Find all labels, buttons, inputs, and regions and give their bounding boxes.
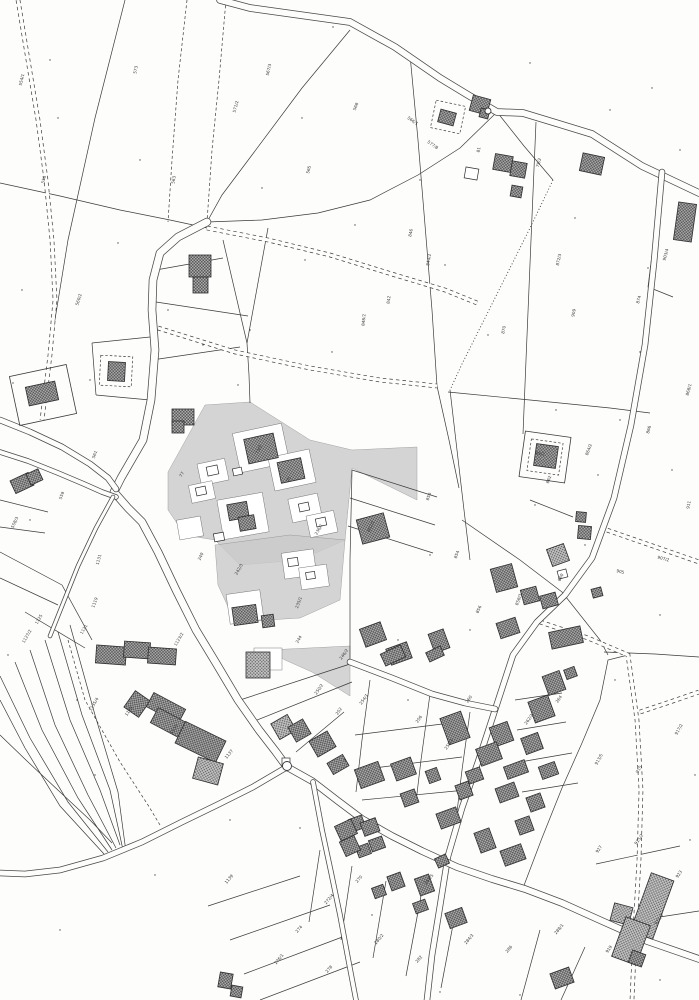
noise-speck <box>555 409 556 410</box>
building <box>261 614 275 628</box>
noise-speck <box>519 994 520 995</box>
building <box>238 515 256 532</box>
building <box>534 444 559 469</box>
building <box>493 154 514 173</box>
noise-speck <box>21 289 22 290</box>
outbuilding-outline <box>232 467 242 476</box>
noise-speck <box>139 159 140 160</box>
noise-speck <box>647 267 648 268</box>
building <box>232 604 258 625</box>
zone-clearing-parcel <box>176 516 203 540</box>
noise-speck <box>609 109 610 110</box>
noise-speck <box>76 699 77 700</box>
cadastral-map-canvas: 573571/2568566/18179/2846848/2909903/456… <box>0 0 699 1000</box>
noise-speck <box>249 329 250 330</box>
noise-speck <box>529 62 530 63</box>
noise-speck <box>7 654 8 655</box>
noise-speck <box>444 264 445 265</box>
noise-speck <box>679 149 680 150</box>
noise-speck <box>304 259 305 260</box>
noise-speck <box>689 839 690 840</box>
noise-speck <box>94 774 95 775</box>
noise-speck <box>439 991 440 992</box>
building <box>95 645 126 665</box>
outbuilding-outline <box>464 167 479 180</box>
noise-speck <box>659 614 660 615</box>
noise-speck <box>29 519 30 520</box>
noise-speck <box>301 117 302 118</box>
noise-speck <box>694 774 695 775</box>
noise-speck <box>584 544 585 545</box>
noise-speck <box>12 382 13 383</box>
noise-speck <box>229 819 230 820</box>
noise-speck <box>651 87 652 88</box>
outbuilding-outline <box>213 532 224 542</box>
noise-speck <box>597 474 598 475</box>
building <box>576 512 587 523</box>
noise-speck <box>167 309 168 310</box>
noise-speck <box>397 639 398 640</box>
noise-speck <box>332 26 333 27</box>
building <box>246 652 270 678</box>
noise-speck <box>574 217 575 218</box>
noise-speck <box>639 351 640 352</box>
noise-speck <box>261 187 262 188</box>
noise-speck <box>419 179 420 180</box>
noise-speck <box>49 59 50 60</box>
noise-speck <box>154 874 155 875</box>
map-page: 573571/2568566/18179/2846848/2909903/456… <box>0 0 699 1000</box>
noise-speck <box>407 699 408 700</box>
building <box>577 525 591 539</box>
building <box>230 985 243 998</box>
noise-speck <box>331 351 332 352</box>
noise-speck <box>202 344 203 345</box>
noise-speck <box>89 379 90 380</box>
building <box>123 641 150 659</box>
noise-speck <box>469 629 470 630</box>
noise-speck <box>344 759 345 760</box>
noise-speck <box>487 334 488 335</box>
outbuilding-outline <box>206 465 219 476</box>
building <box>172 421 184 433</box>
noise-speck <box>59 929 60 930</box>
noise-speck <box>534 504 535 505</box>
building <box>108 362 126 382</box>
outbuilding-outline <box>195 486 206 496</box>
noise-speck <box>429 554 430 555</box>
noise-speck <box>237 384 238 385</box>
junction-circle-symbol <box>283 762 292 771</box>
noise-speck <box>371 914 372 915</box>
building <box>189 255 211 277</box>
building <box>193 277 208 293</box>
noise-speck <box>659 979 660 980</box>
noise-speck <box>299 827 300 828</box>
noise-speck <box>614 679 615 680</box>
building <box>510 161 527 178</box>
noise-speck <box>57 117 58 118</box>
outbuilding-outline <box>306 571 316 579</box>
noise-speck <box>671 469 672 470</box>
building <box>147 647 176 665</box>
noise-speck <box>354 224 355 225</box>
noise-speck <box>619 419 620 420</box>
outbuilding-outline <box>298 502 309 512</box>
building <box>510 185 523 198</box>
building <box>218 972 233 989</box>
junction-circle-symbol <box>485 108 491 114</box>
noise-speck <box>117 242 118 243</box>
outbuilding-outline <box>287 557 298 566</box>
